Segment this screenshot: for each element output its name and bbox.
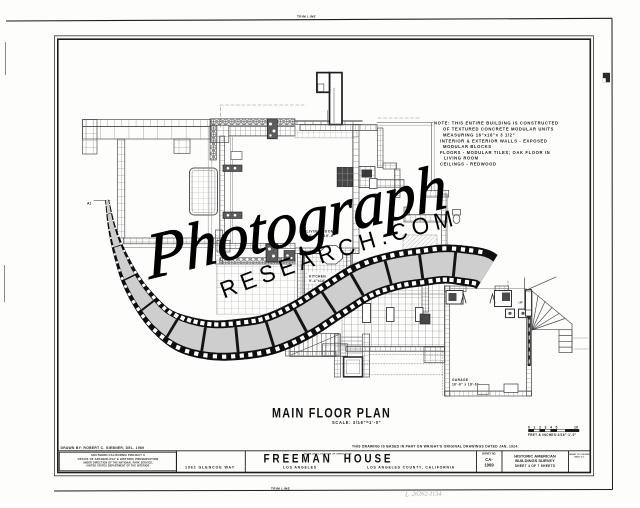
svg-text:L𝉜: L𝉜 [404, 490, 409, 498]
svg-text:NOTE: THIS ENTIRE BUILDING: NOTE: THIS ENTIRE BUILDING IS CONSTRUCTE… [434, 121, 559, 126]
svg-text:LIBRARY OF CONGRESS: LIBRARY OF CONGRESS [568, 453, 592, 456]
svg-text:SCALE: 3/16"=1'-0": SCALE: 3/16"=1'-0" [332, 420, 381, 425]
svg-text:1969: 1969 [484, 463, 494, 468]
svg-text:FEET & INCHES·3/16"·1'-0": FEET & INCHES·3/16"·1'-0" [528, 433, 577, 437]
svg-text:16'-6" x 18'-6": 16'-6" x 18'-6" [452, 382, 479, 386]
svg-text:LIVING ROOM: LIVING ROOM [444, 156, 479, 161]
svg-text:BUILDINGS SURVEY: BUILDINGS SURVEY [515, 458, 555, 463]
svg-text:UNITED STATES DEPARTMENT OF TH: UNITED STATES DEPARTMENT OF THE INTERIOR [87, 465, 150, 468]
svg-text:FLOORS - MODULAR TILES; OAK: FLOORS - MODULAR TILES; OAK FLOOR IN [440, 150, 550, 155]
svg-text:SHEET 4 OF 7 SHEETS: SHEET 4 OF 7 SHEETS [515, 464, 556, 468]
svg-text:3: 3 [545, 426, 547, 430]
svg-text:2: 2 [539, 426, 541, 430]
svg-text:UNDER DIRECTION OF THE NATIONA: UNDER DIRECTION OF THE NATIONAL PARK SER… [83, 462, 153, 465]
svg-text:4: 4 [550, 426, 552, 430]
svg-text:5: 5 [556, 426, 558, 430]
svg-text:0: 0 [528, 426, 530, 430]
svg-text:INTERIOR & EXTERIOR WALLS -: INTERIOR & EXTERIOR WALLS - EXPOSED [440, 138, 548, 143]
svg-text:CA-: CA- [485, 457, 493, 462]
svg-text:TRIM LINE: TRIM LINE [297, 15, 316, 19]
svg-text:LOS ANGELES: LOS ANGELES [283, 466, 317, 470]
svg-text:UP: UP [519, 301, 523, 305]
svg-text:MAIN FLOOR PLAN: MAIN FLOOR PLAN [272, 405, 391, 421]
svg-text:MEASURING 16"x16"x 3 1/2": MEASURING 16"x16"x 3 1/2" [443, 132, 515, 137]
svg-text:1: 1 [534, 426, 536, 430]
svg-text:26262-1134: 26262-1134 [412, 491, 441, 498]
svg-text:DRAWN BY: ROBERT C. GIEBNER,: DRAWN BY: ROBERT C. GIEBNER, DEL. 1969 [61, 446, 145, 450]
svg-text:OFFICE OF ARCHEOLOGY & HIS: OFFICE OF ARCHEOLOGY & HISTORIC PRESERVA… [78, 457, 159, 461]
svg-text:10: 10 [574, 426, 578, 430]
svg-text:MODULAR BLOCKS: MODULAR BLOCKS [443, 144, 492, 149]
svg-text:SURVEY NO.: SURVEY NO. [482, 453, 496, 455]
svg-text:FREEMAN HOUSE: FREEMAN HOUSE [264, 453, 394, 466]
svg-text:LOS ANGELES COUNTY, CALIFOR: LOS ANGELES COUNTY, CALIFORNIA [367, 466, 455, 470]
svg-text:A1: A1 [87, 202, 91, 206]
svg-text:CEILINGS - REDWOOD: CEILINGS - REDWOOD [440, 161, 497, 166]
svg-text:TRIM LINE: TRIM LINE [271, 487, 290, 491]
svg-text:OF TEXTURED CONCRETE MODULAR: OF TEXTURED CONCRETE MODULAR UNITS [443, 127, 554, 132]
svg-text:1962 GLENCOE WAY: 1962 GLENCOE WAY [185, 466, 235, 470]
svg-text:WASH. D.C.: WASH. D.C. [574, 456, 585, 459]
svg-text:THIS DRAWING IS BASED IN: THIS DRAWING IS BASED IN PART ON WRIGHT'… [352, 444, 519, 448]
svg-text:SOUTHERN CALIFORNIA PROJEC: SOUTHERN CALIFORNIA PROJECT II [91, 453, 145, 457]
